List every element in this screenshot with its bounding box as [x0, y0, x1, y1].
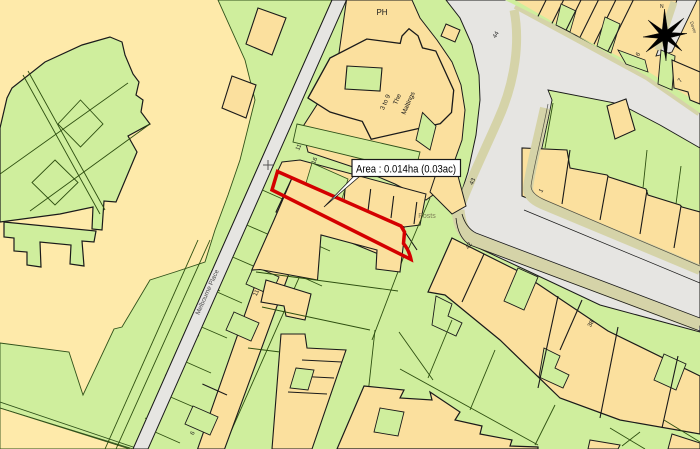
svg-text:N: N — [660, 4, 664, 10]
svg-text:Area : 0.014ha (0.03ac): Area : 0.014ha (0.03ac) — [356, 164, 456, 176]
svg-text:PH: PH — [376, 8, 387, 17]
